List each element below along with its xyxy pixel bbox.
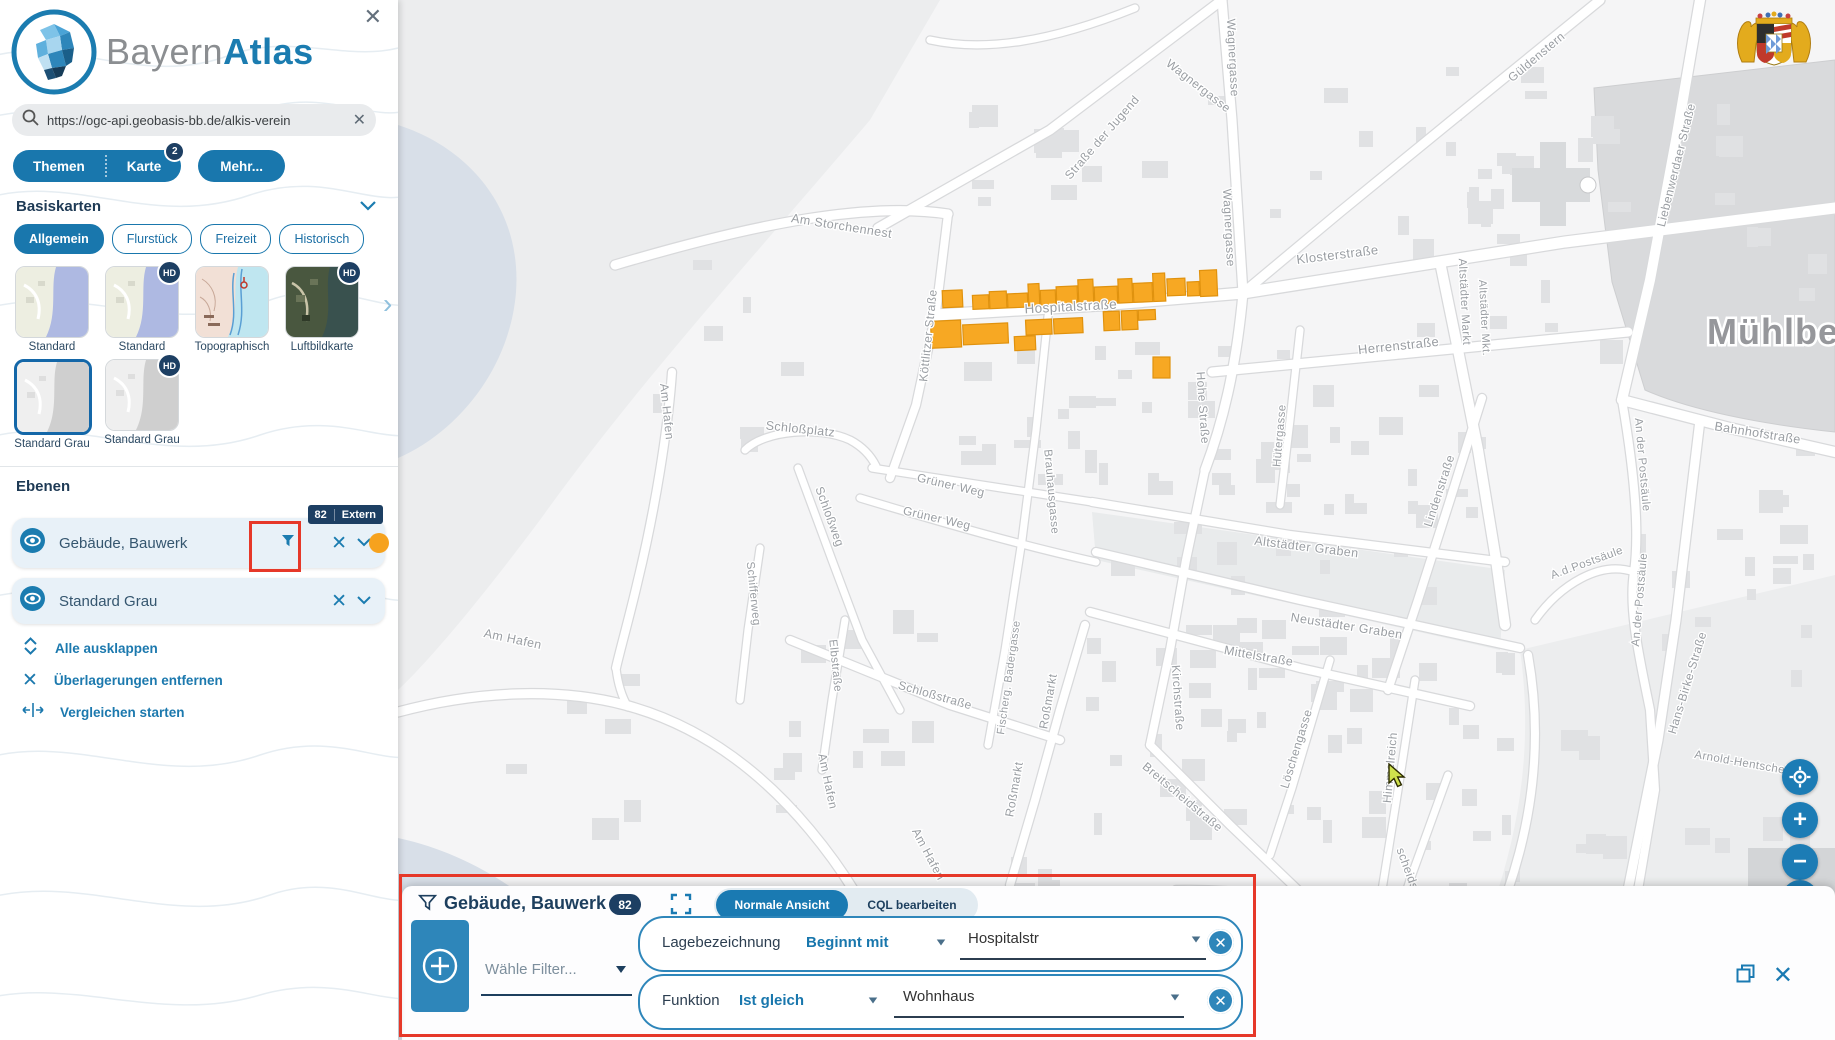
filter-panel-title: Gebäude, Bauwerk <box>444 893 606 914</box>
close-icon: ✕ <box>1214 934 1227 952</box>
building <box>1408 469 1417 486</box>
thumb-label: Standard Grau <box>104 434 180 446</box>
building <box>592 818 619 840</box>
building <box>1086 697 1099 711</box>
action-label: Überlagerungen entfernen <box>54 673 223 688</box>
building <box>1036 140 1062 158</box>
building <box>1313 385 1334 407</box>
building <box>743 297 751 313</box>
chip-allgemein[interactable]: Allgemein <box>14 224 104 254</box>
menu-themen[interactable]: Themen <box>13 150 105 182</box>
karte-count-badge: 2 <box>164 141 185 162</box>
building <box>1379 417 1403 435</box>
building <box>972 180 994 189</box>
chevron-down-icon[interactable] <box>869 998 878 1004</box>
building <box>1757 228 1771 246</box>
filter-panel: Gebäude, Bauwerk 82 Normale Ansicht CQL … <box>402 886 1835 1040</box>
building <box>1608 202 1631 212</box>
detach-window-icon[interactable] <box>1736 964 1755 988</box>
building <box>1473 831 1491 841</box>
result-count-badge: 82 <box>609 894 641 915</box>
bavaria-coat-of-arms <box>1732 10 1816 75</box>
chip-freizeit[interactable]: Freizeit <box>200 224 271 254</box>
building <box>1270 209 1281 218</box>
building <box>605 719 631 734</box>
action-ueberlagerungen-entfernen[interactable]: ✕ Überlagerungen entfernen <box>22 669 223 692</box>
close-icon: ✕ <box>1214 992 1227 1010</box>
building <box>912 721 934 743</box>
highlighted-building[interactable] <box>1121 310 1138 330</box>
building <box>1541 280 1550 303</box>
building <box>1094 813 1102 835</box>
basemap-category-chips: Allgemein Flurstück Freizeit Historisch <box>14 224 364 254</box>
building <box>1717 104 1730 125</box>
building <box>1347 728 1362 744</box>
building <box>1212 473 1231 485</box>
thumb-label: Topographisch <box>194 341 270 353</box>
building <box>1350 689 1373 712</box>
building <box>1446 142 1456 156</box>
building <box>1773 568 1791 584</box>
building <box>1747 227 1758 247</box>
search-input[interactable]: https://ogc-api.geobasis-bb.de/alkis-ver… <box>47 113 353 128</box>
building <box>1359 131 1373 147</box>
filter-field-label: Lagebezeichnung <box>662 934 780 951</box>
chevron-down-icon[interactable] <box>357 592 371 610</box>
value-underline <box>894 1016 1184 1018</box>
building <box>1292 646 1319 655</box>
building <box>1069 396 1096 408</box>
building <box>1747 589 1756 600</box>
unfold-icon <box>22 636 39 661</box>
layer-color-dot[interactable] <box>369 533 389 553</box>
building <box>1324 504 1334 515</box>
remove-layer-icon[interactable]: ✕ <box>331 532 347 555</box>
building <box>1780 525 1808 544</box>
highlighted-building[interactable] <box>1103 311 1120 331</box>
layer-name: Standard Grau <box>59 593 321 610</box>
basemap-thumb-topographisch[interactable]: Topographisch <box>194 266 270 353</box>
layer-row-standard-grau[interactable]: Standard Grau ✕ <box>12 578 385 624</box>
plus-icon: + <box>1793 806 1807 834</box>
building <box>506 764 527 774</box>
building <box>1695 617 1711 627</box>
filter-row-lagebezeichnung: Lagebezeichnung Beginnt mit Hospitalstr … <box>638 916 1243 972</box>
building <box>1259 668 1285 678</box>
action-label: Alle ausklappen <box>55 641 158 656</box>
building <box>1419 385 1439 397</box>
bayernatlas-logo-icon <box>10 8 98 96</box>
building <box>1446 67 1459 76</box>
chevron-down-icon[interactable] <box>1171 995 1180 1001</box>
remove-filter-button[interactable]: ✕ <box>1207 929 1234 956</box>
building <box>1799 288 1815 301</box>
carousel-next-icon[interactable]: › <box>383 288 392 320</box>
building <box>783 753 802 772</box>
action-alle-ausklappen[interactable]: Alle ausklappen <box>22 636 158 661</box>
value-underline <box>960 958 1206 960</box>
basemap-thumbnails: Standard HD Standard Topographisch HD Lu… <box>14 266 386 456</box>
building <box>853 751 863 768</box>
building <box>1217 542 1237 565</box>
highlighted-building[interactable] <box>1138 309 1155 320</box>
thumb-label: Standard <box>14 341 90 353</box>
building <box>1142 402 1152 413</box>
building <box>1490 316 1507 329</box>
building <box>1745 557 1755 576</box>
building <box>881 751 905 766</box>
highlighted-building[interactable] <box>1153 273 1166 301</box>
building <box>893 610 914 634</box>
extern-badge: 82 Extern <box>308 505 384 524</box>
building <box>1462 789 1477 806</box>
building <box>1466 507 1478 518</box>
building <box>1502 815 1511 835</box>
highlighted-building[interactable] <box>1118 278 1133 303</box>
building <box>1715 838 1730 853</box>
building <box>1320 560 1330 574</box>
building <box>1351 441 1369 455</box>
building <box>624 800 641 822</box>
geolocate-button[interactable] <box>1782 759 1818 795</box>
building <box>978 197 991 206</box>
building <box>1478 169 1492 179</box>
minus-icon: − <box>1793 848 1807 876</box>
chevron-down-icon[interactable] <box>1192 937 1201 943</box>
building <box>1118 370 1132 379</box>
building <box>1502 653 1515 675</box>
building <box>863 729 889 743</box>
filter-operator[interactable]: Ist gleich <box>739 992 804 1009</box>
building <box>1324 88 1348 103</box>
filter-value[interactable]: Hospitalstr <box>968 930 1039 947</box>
building <box>1578 138 1593 162</box>
basiskarten-title: Basiskarten <box>16 198 101 215</box>
building <box>1715 193 1735 205</box>
building <box>1320 637 1347 655</box>
building <box>1763 817 1783 841</box>
building <box>1579 736 1600 760</box>
building <box>1801 625 1812 638</box>
search-icon <box>22 109 39 131</box>
building <box>1449 708 1459 725</box>
building <box>1328 735 1342 753</box>
building <box>1307 807 1321 820</box>
building <box>789 721 801 737</box>
chevron-down-icon[interactable] <box>937 940 946 946</box>
building <box>781 362 804 376</box>
compare-icon <box>22 703 44 722</box>
choose-filter-placeholder: Wähle Filter... <box>485 961 616 978</box>
building <box>1297 454 1311 462</box>
highlighted-building[interactable] <box>972 295 989 310</box>
building <box>1808 254 1827 274</box>
ebenen-title: Ebenen <box>16 478 70 495</box>
building <box>1398 216 1409 235</box>
building <box>1227 731 1237 742</box>
building <box>1219 485 1235 495</box>
highlighted-building[interactable] <box>1014 336 1036 351</box>
building <box>1095 346 1106 360</box>
extern-label: Extern <box>335 509 383 521</box>
visibility-eye-icon[interactable] <box>20 528 45 558</box>
building <box>1545 323 1558 332</box>
building <box>1248 668 1257 690</box>
section-divider <box>0 466 398 467</box>
menu-mehr[interactable]: Mehr... <box>198 150 285 182</box>
filter-icon[interactable] <box>279 532 297 555</box>
building <box>1345 503 1367 514</box>
highlighted-building[interactable] <box>1167 278 1186 296</box>
building <box>1497 234 1520 244</box>
building <box>1600 340 1623 364</box>
hd-badge: HD <box>337 260 362 285</box>
building <box>1719 136 1743 157</box>
thumb-label: Standard Grau <box>14 438 90 450</box>
chip-flurstueck[interactable]: Flurstück <box>112 224 193 254</box>
building <box>1593 129 1620 144</box>
building <box>1419 663 1437 681</box>
app-title: BayernAtlas <box>106 31 314 73</box>
remove-layer-icon[interactable]: ✕ <box>331 590 347 613</box>
building <box>1277 350 1290 359</box>
filter-field-label: Funktion <box>662 992 720 1009</box>
basemap-thumb-luftbildkarte[interactable]: HD Luftbildkarte <box>284 266 360 353</box>
building <box>1142 161 1168 178</box>
building <box>1189 683 1211 698</box>
building <box>1110 755 1122 766</box>
building <box>1481 205 1491 227</box>
building <box>1497 738 1514 751</box>
building <box>1576 844 1587 853</box>
building <box>1102 661 1116 682</box>
bayernatlas-app: { "icons": {"close": "✕", "clear": "✕", … <box>0 0 1835 1040</box>
chip-historisch[interactable]: Historisch <box>279 224 364 254</box>
remove-filter-button[interactable]: ✕ <box>1207 987 1234 1014</box>
chevron-down-icon <box>616 966 626 973</box>
building <box>704 326 723 341</box>
close-icon: ✕ <box>22 669 38 692</box>
choose-filter-select[interactable]: Wähle Filter... <box>481 944 632 996</box>
collapse-basiskarten-icon[interactable] <box>360 198 376 216</box>
add-filter-button[interactable] <box>411 920 469 1012</box>
thumb-label: Luftbildkarte <box>284 341 360 353</box>
building <box>1362 817 1386 838</box>
town-label: Mühlberg <box>1707 311 1835 352</box>
basemap-thumb-standard-hd[interactable]: HD Standard <box>104 266 180 353</box>
building <box>959 436 976 445</box>
highlighted-building[interactable] <box>1133 283 1153 303</box>
highlighted-building[interactable] <box>942 290 963 308</box>
building <box>1201 709 1222 727</box>
app-title-blue: Atlas <box>223 31 314 72</box>
building <box>1773 556 1798 564</box>
highlighted-building[interactable] <box>1153 357 1170 378</box>
basemap-thumb-standard-grau[interactable]: Standard Grau <box>14 359 90 450</box>
building <box>1087 638 1101 654</box>
hd-badge: HD <box>157 353 182 378</box>
close-sidebar-icon[interactable]: ✕ <box>364 4 382 30</box>
building <box>1463 725 1479 739</box>
building <box>1051 185 1077 200</box>
building <box>1330 427 1340 443</box>
zoom-out-button[interactable]: − <box>1782 844 1818 880</box>
building <box>1791 670 1802 687</box>
building <box>1323 820 1332 843</box>
funnel-outline-icon <box>417 892 439 919</box>
building <box>961 451 985 465</box>
building <box>1190 650 1216 668</box>
menu-pill-group: Themen Karte 2 <box>13 150 181 182</box>
building <box>1497 153 1516 166</box>
building <box>1803 554 1814 570</box>
building <box>1310 171 1322 180</box>
hd-badge: HD <box>157 260 182 285</box>
clear-search-icon[interactable]: ✕ <box>353 110 366 130</box>
app-title-gray: Bayern <box>106 31 223 72</box>
building <box>1257 712 1266 728</box>
building <box>917 633 938 642</box>
building <box>964 362 992 381</box>
visibility-eye-icon[interactable] <box>20 586 45 616</box>
building <box>1525 91 1547 99</box>
building <box>1759 490 1783 513</box>
building <box>1262 620 1286 639</box>
building <box>972 105 998 127</box>
highlighted-building[interactable] <box>1026 319 1053 335</box>
building <box>1068 431 1080 449</box>
filter-row-funktion: Funktion Ist gleich Wohnhaus ✕ <box>638 974 1243 1030</box>
building <box>1603 836 1627 859</box>
filter-operator[interactable]: Beginnt mit <box>806 934 889 951</box>
building <box>1561 742 1580 751</box>
building <box>1099 463 1108 485</box>
building <box>1717 529 1743 540</box>
close-panel-icon[interactable]: ✕ <box>1773 964 1793 988</box>
thumb-label: Standard <box>104 341 180 353</box>
highlighted-building[interactable] <box>1200 270 1218 297</box>
sidebar: ✕ BayernAtlas <box>0 0 398 1040</box>
building <box>1082 166 1102 182</box>
layer-row-gebaeude-bauwerk[interactable]: Gebäude, Bauwerk ✕ 82 Extern <box>12 518 385 568</box>
filter-value[interactable]: Wohnhaus <box>903 988 974 1005</box>
building <box>1085 450 1097 473</box>
building <box>1094 398 1116 406</box>
search-bar: https://ogc-api.geobasis-bb.de/alkis-ver… <box>12 104 376 136</box>
basemap-thumb-standard-grau-hd[interactable]: HD Standard Grau <box>104 359 180 450</box>
action-label: Vergleichen starten <box>60 705 185 720</box>
zoom-in-button[interactable]: + <box>1782 802 1818 838</box>
building <box>1287 484 1300 497</box>
layer-name: Gebäude, Bauwerk <box>59 535 279 552</box>
highlighted-building[interactable] <box>963 323 1009 345</box>
building <box>1135 342 1160 355</box>
highlighted-building[interactable] <box>989 291 1007 309</box>
building <box>693 260 712 270</box>
building <box>1228 719 1246 733</box>
highlighted-building[interactable] <box>1187 282 1200 297</box>
extern-count: 82 <box>308 509 335 521</box>
action-vergleichen-starten[interactable]: Vergleichen starten <box>22 703 185 722</box>
building <box>1149 481 1173 495</box>
basemap-thumb-standard[interactable]: Standard <box>14 266 90 353</box>
highlighted-building[interactable] <box>1053 318 1083 334</box>
building <box>1058 409 1069 419</box>
building <box>1685 828 1710 845</box>
